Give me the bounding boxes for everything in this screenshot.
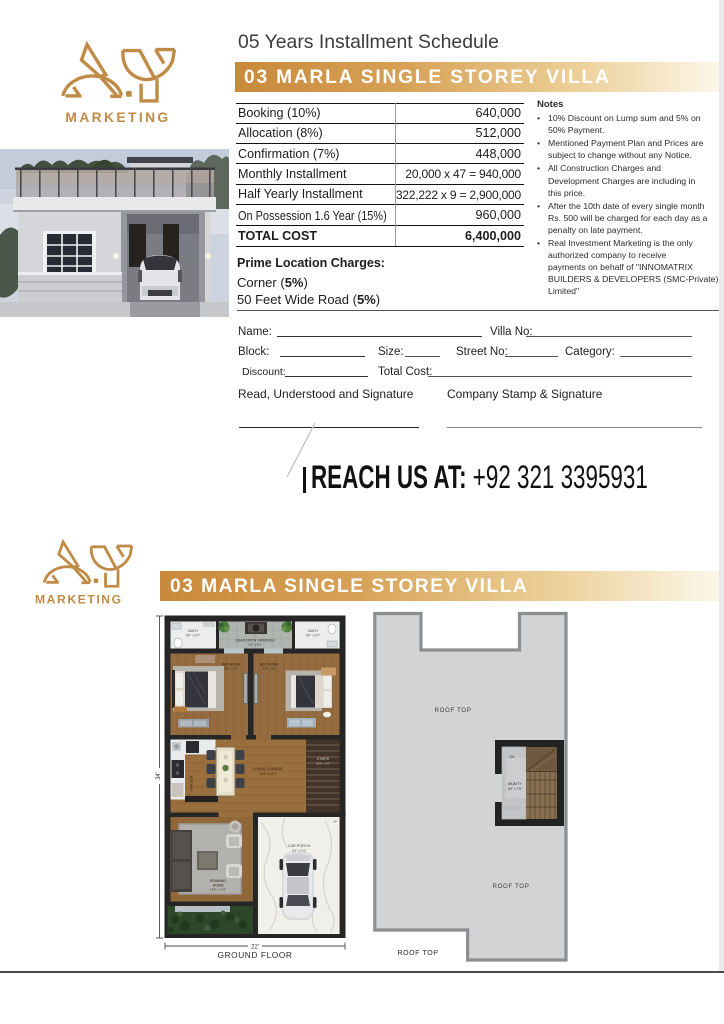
svg-text:BATH: BATH [308,629,318,633]
svg-text:GROUND FLOOR: GROUND FLOOR [218,950,293,960]
svg-text:8'0" x 5'0": 8'0" x 5'0" [306,634,320,638]
svg-text:10'0" x 9'0": 10'0" x 9'0" [224,667,239,671]
svg-text:LIVING LOUNGE: LIVING LOUNGE [253,767,283,771]
svg-text:MARKETING: MARKETING [65,110,170,125]
svg-text:DRAWING: DRAWING [210,879,227,883]
svg-text:UP: UP [333,820,337,824]
svg-text:7'4" x 5'0": 7'4" x 5'0" [248,643,262,647]
svg-text:16'4" x 12'0": 16'4" x 12'0" [259,772,276,776]
svg-text:DN: DN [510,755,515,759]
svg-text:10'0" x 9'0": 10'0" x 9'0" [262,667,277,671]
svg-text:ROOF TOP: ROOF TOP [493,883,530,890]
svg-text:34': 34' [156,772,162,780]
svg-text:MUMTY: MUMTY [508,782,522,786]
svg-text:13'6" x 3'0": 13'6" x 3'0" [316,762,330,766]
svg-text:BATH: BATH [188,629,198,633]
svg-text:ROOF TOP: ROOF TOP [435,707,472,714]
svg-text:MARKETING: MARKETING [35,593,123,607]
svg-text:ROOF TOP: ROOF TOP [397,950,438,957]
svg-text:CAR PORCH: CAR PORCH [288,844,311,848]
svg-text:STAIRS: STAIRS [317,757,330,761]
svg-text:KITCHEN: KITCHEN [189,776,193,791]
svg-text:8'0" x 7'6": 8'0" x 7'6" [508,787,522,791]
svg-text:14'6" x 11'6": 14'6" x 11'6" [210,888,226,892]
svg-text:8'0" x 5'0": 8'0" x 5'0" [186,634,200,638]
